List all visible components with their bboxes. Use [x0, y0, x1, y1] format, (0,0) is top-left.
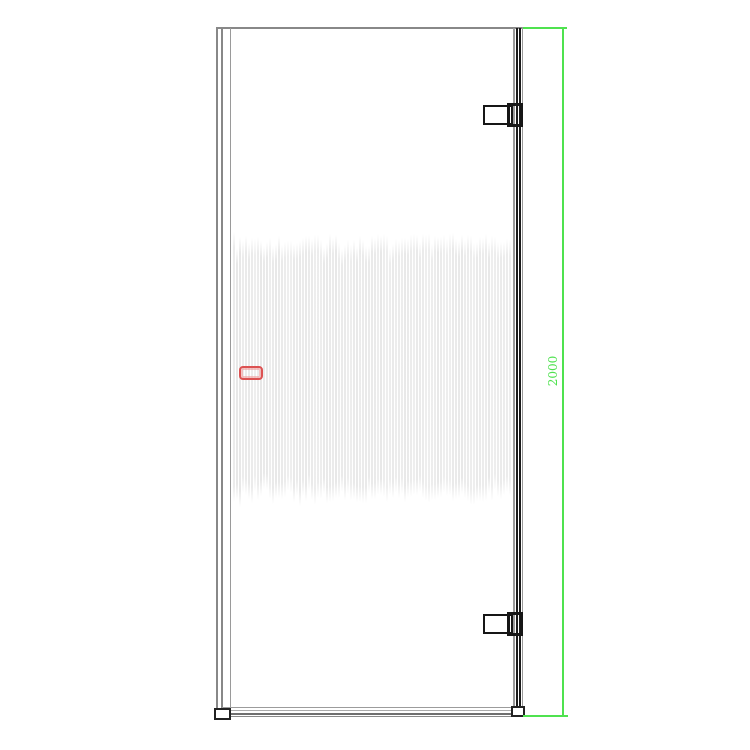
fluted-stripe	[311, 239, 313, 500]
fluted-glass-pattern	[233, 230, 513, 508]
fluted-stripe	[377, 234, 379, 495]
fluted-stripe	[407, 239, 409, 497]
fluted-stripe	[449, 234, 451, 496]
fluted-stripe	[479, 237, 481, 501]
bottom-rail-line-2	[222, 710, 512, 711]
fluted-stripe	[419, 242, 421, 492]
fluted-stripe	[359, 236, 361, 502]
fluted-stripe	[287, 241, 289, 491]
fluted-stripe	[368, 246, 370, 493]
fluted-stripe	[443, 235, 445, 493]
wall-profile-inner-line	[221, 27, 223, 717]
fluted-stripe	[491, 236, 493, 501]
fluted-stripe	[494, 237, 496, 490]
fluted-stripe	[404, 238, 406, 502]
fluted-stripe	[500, 242, 502, 499]
door-top-edge	[216, 27, 523, 29]
fluted-stripe	[335, 235, 337, 498]
fluted-stripe	[503, 242, 505, 495]
fluted-stripe	[299, 241, 301, 506]
bottom-rail-line-1	[222, 707, 512, 709]
fluted-stripe	[326, 243, 328, 503]
fluted-stripe	[272, 246, 274, 504]
fluted-stripe	[497, 242, 499, 497]
fluted-stripe	[332, 238, 334, 501]
fluted-stripe	[302, 238, 304, 496]
fluted-stripe	[353, 240, 355, 499]
fluted-stripe	[275, 244, 277, 498]
dimension-extension-line-bottom	[523, 715, 568, 717]
glass-right-edge	[513, 28, 515, 707]
fluted-stripe	[461, 235, 463, 494]
fluted-stripe	[338, 243, 340, 498]
fluted-stripe	[293, 244, 295, 502]
fluted-stripe	[395, 239, 397, 493]
fluted-stripe	[488, 242, 490, 493]
fluted-stripe	[464, 240, 466, 498]
fluted-stripe	[296, 243, 298, 496]
fluted-stripe	[263, 246, 265, 489]
fluted-stripe	[329, 234, 331, 502]
fluted-stripe	[509, 240, 511, 496]
fluted-stripe	[314, 235, 316, 505]
fluted-stripe	[266, 242, 268, 490]
fluted-stripe	[476, 242, 478, 501]
dimension-extension-line-top	[523, 27, 567, 29]
fluted-stripe	[473, 243, 475, 505]
fluted-stripe	[380, 236, 382, 495]
fluted-stripe	[446, 239, 448, 496]
fluted-stripe	[434, 236, 436, 500]
fluted-stripe	[392, 244, 394, 498]
fluted-stripe	[413, 234, 415, 495]
fluted-stripe	[440, 237, 442, 497]
glass-left-edge	[230, 28, 232, 707]
fluted-stripe	[485, 234, 487, 501]
top-hinge-clamp	[507, 103, 523, 127]
fluted-stripe	[398, 241, 400, 498]
logo-placement-marker	[239, 366, 263, 380]
fluted-stripe	[356, 246, 358, 502]
fluted-stripe	[320, 240, 322, 499]
fluted-stripe	[506, 239, 508, 492]
fluted-stripe	[362, 240, 364, 503]
fluted-stripe	[482, 238, 484, 502]
fluted-stripe	[374, 238, 376, 499]
fluted-stripe	[341, 249, 343, 492]
fluted-stripe	[383, 234, 385, 497]
fluted-stripe	[371, 236, 373, 499]
fluted-stripe	[389, 248, 391, 495]
fluted-stripe	[386, 236, 388, 502]
fluted-stripe	[269, 238, 271, 499]
wall-profile-foot-block	[214, 708, 231, 720]
fluted-stripe	[467, 235, 469, 501]
fluted-stripe	[347, 240, 349, 494]
fluted-stripe	[470, 236, 472, 505]
fluted-stripe	[428, 234, 430, 503]
fluted-stripe	[365, 246, 367, 503]
fluted-stripe	[452, 233, 454, 501]
bottom-hinge-clamp	[507, 612, 523, 636]
fluted-stripe	[431, 244, 433, 500]
fluted-stripe	[284, 242, 286, 497]
fluted-stripe	[281, 245, 283, 499]
fluted-stripe	[350, 245, 352, 500]
fluted-stripe	[344, 245, 346, 500]
fluted-stripe	[233, 232, 235, 502]
bottom-rail-line-4	[214, 716, 522, 718]
fluted-stripe	[323, 247, 325, 494]
dimension-label-text: 2000	[546, 356, 560, 387]
fluted-stripe	[317, 235, 319, 498]
technical-drawing-canvas: 2000	[0, 0, 750, 750]
fluted-stripe	[401, 238, 403, 494]
fluted-stripe	[458, 241, 460, 498]
fluted-stripe	[278, 236, 280, 498]
fluted-stripe	[422, 234, 424, 498]
fluted-stripe	[455, 239, 457, 499]
dimension-line-vertical	[562, 28, 564, 715]
fluted-stripe	[410, 235, 412, 497]
fluted-stripe	[416, 235, 418, 495]
fluted-stripe	[425, 235, 427, 501]
wall-profile-outer-line	[216, 27, 218, 717]
fluted-stripe	[236, 248, 238, 500]
fluted-stripe	[305, 236, 307, 501]
bottom-rail-line-3	[222, 713, 512, 715]
fluted-stripe	[290, 241, 292, 493]
fluted-stripe	[437, 237, 439, 498]
fluted-stripe	[308, 236, 310, 491]
